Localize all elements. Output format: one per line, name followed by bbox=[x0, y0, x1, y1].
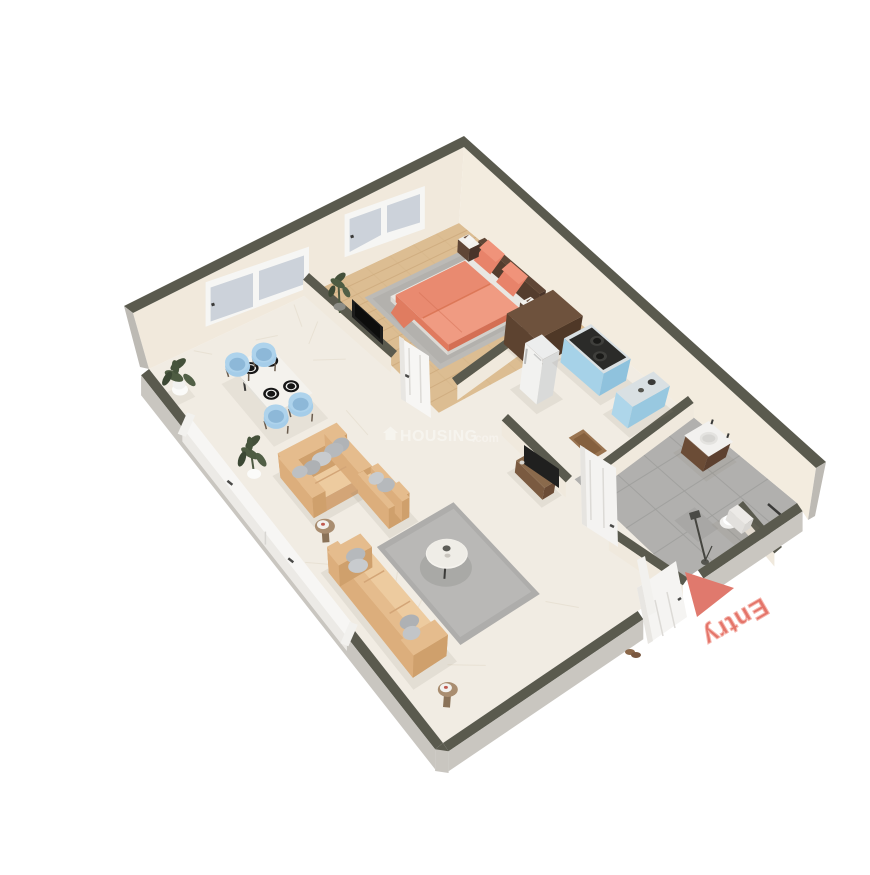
svg-text:HOUSING: HOUSING bbox=[400, 428, 477, 445]
svg-text:.com: .com bbox=[472, 433, 499, 445]
